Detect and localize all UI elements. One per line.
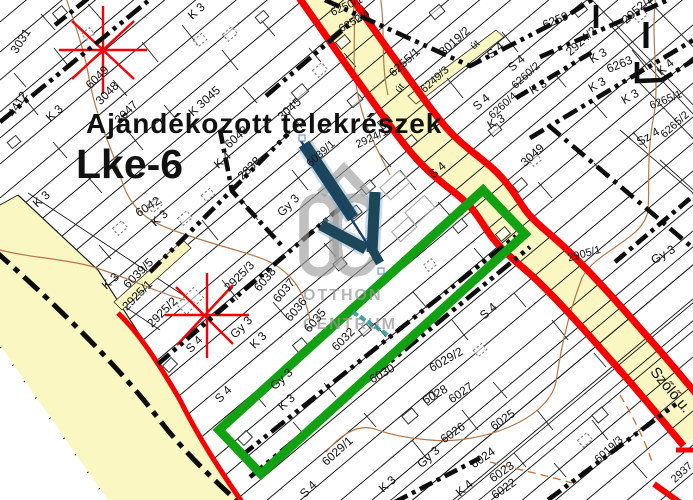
svg-text:Lke-6: Lke-6	[76, 141, 183, 187]
svg-text:OTTHON: OTTHON	[303, 287, 383, 304]
svg-text:Ajándékozott telekrészek: Ajándékozott telekrészek	[86, 108, 442, 139]
